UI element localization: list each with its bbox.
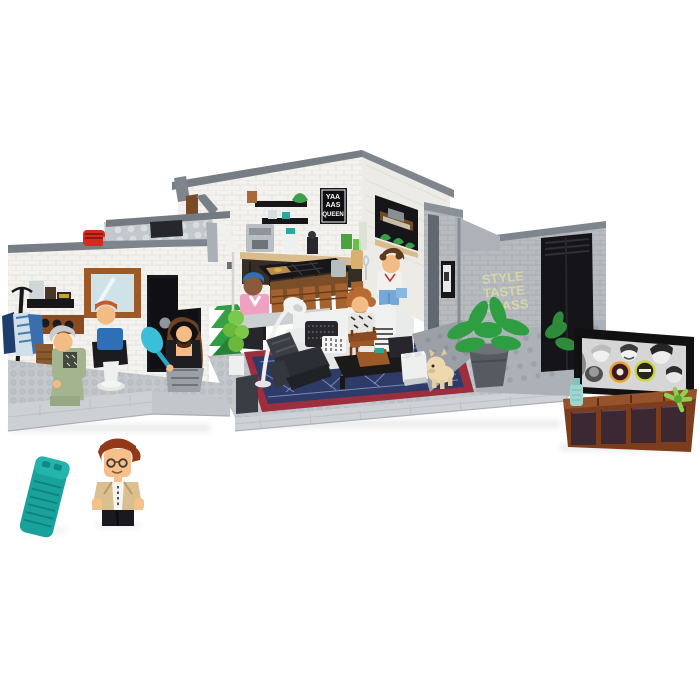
svg-text:QUEEN: QUEEN [322, 212, 343, 218]
svg-text:YAA: YAA [326, 194, 340, 201]
svg-text:AAS: AAS [326, 202, 341, 209]
